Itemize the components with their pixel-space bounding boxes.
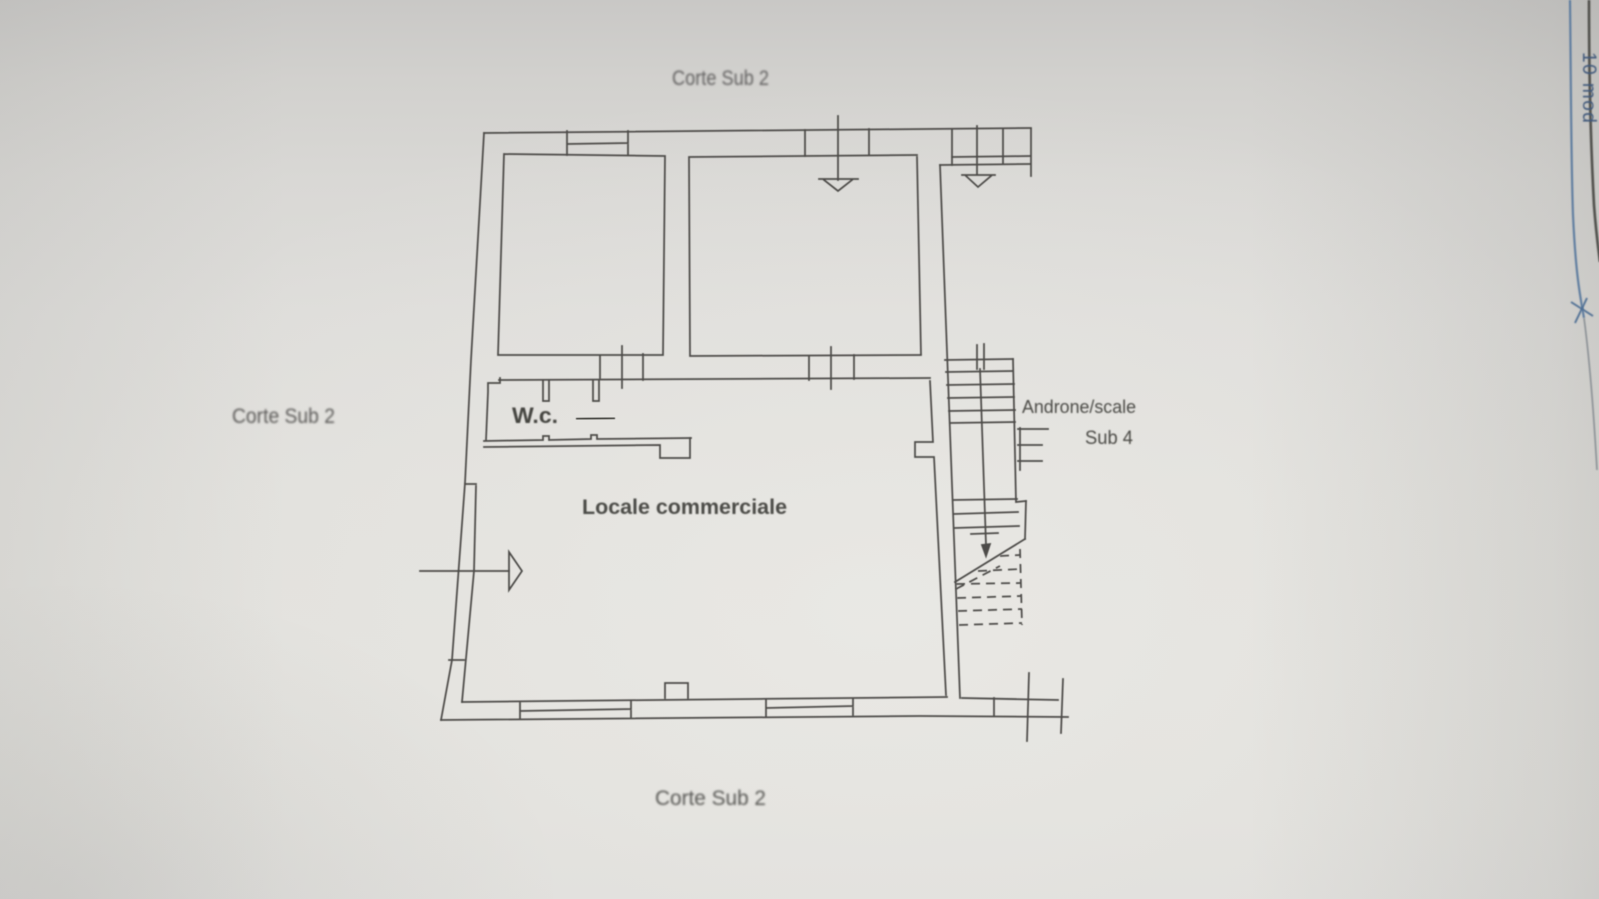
svg-text:10 mod: 10 mod bbox=[1578, 52, 1599, 124]
svg-text:W.c.: W.c. bbox=[512, 403, 558, 428]
svg-text:Corte Sub 2: Corte Sub 2 bbox=[232, 405, 335, 428]
svg-text:Corte Sub 2: Corte Sub 2 bbox=[655, 787, 766, 810]
svg-text:Androne/scale: Androne/scale bbox=[1022, 396, 1136, 417]
svg-text:Sub 4: Sub 4 bbox=[1085, 428, 1133, 449]
svg-text:Corte Sub 2: Corte Sub 2 bbox=[672, 66, 769, 90]
svg-text:Locale commerciale: Locale commerciale bbox=[582, 495, 787, 519]
